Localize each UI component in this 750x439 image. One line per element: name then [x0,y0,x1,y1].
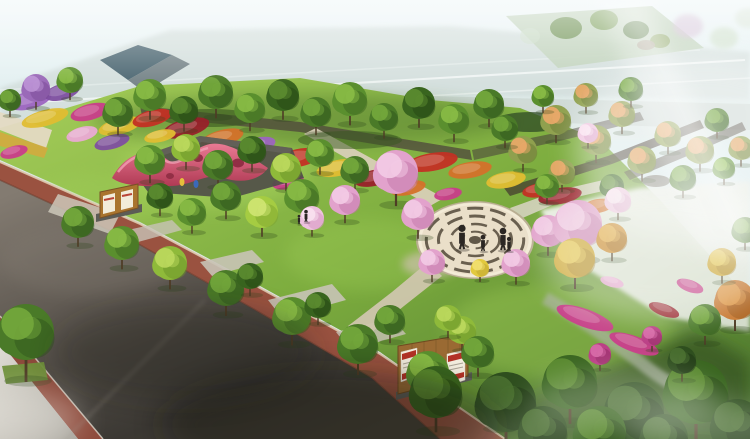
person-head [458,225,465,232]
tree-canopy-highlight [212,83,226,97]
tree-shadow [204,114,233,121]
tree-shadow [158,285,187,292]
tree-shadow [407,124,434,130]
tree-canopy-highlight [450,111,462,123]
tree-canopy-highlight [513,255,524,266]
tree-shadow [545,139,571,145]
child-figure [180,178,185,186]
tree-shadow [539,201,559,206]
tree-canopy-highlight [353,333,369,349]
tree-canopy-highlight [317,145,328,156]
tree-shadow [182,230,206,236]
tree-shadow [406,235,433,241]
tree-canopy-highlight [166,254,180,268]
tree-canopy-highlight [520,142,531,153]
tree-canopy-highlight [544,179,554,189]
sculpture-hole [166,173,174,179]
tree-canopy-highlight [415,94,428,107]
tree-shadow [338,121,367,128]
tree-canopy-highlight [118,234,132,248]
top-fade [0,0,750,84]
tree-canopy-highlight [597,348,606,357]
tree-shadow [3,114,22,118]
tree-canopy-highlight [309,211,319,221]
tree-shadow [26,106,50,112]
tree-canopy-highlight [222,188,234,200]
tree-shadow [305,131,331,137]
tree-canopy-highlight [414,205,427,218]
tree-canopy-highlight [485,96,497,108]
tree-shadow [242,168,266,174]
sign-panel [103,193,115,214]
tree-canopy-highlight [540,90,549,99]
tree-shadow [250,233,277,239]
tree-shadow [176,166,200,172]
tree-shadow [309,322,331,327]
tree-shadow [439,335,461,340]
tree-canopy-highlight [214,157,226,169]
tree-canopy-highlight [341,192,353,204]
tree-canopy-highlight [502,121,512,131]
tree-shadow [334,219,360,225]
tree-shadow [215,215,241,221]
tree-shadow [496,145,518,150]
park-rendering-stage [0,0,750,439]
plaza-center [469,236,481,244]
tree-shadow [4,375,52,386]
tree-shadow [107,131,133,137]
tree-canopy-highlight [183,140,194,151]
tree-canopy-highlight [552,112,564,124]
tree-canopy-highlight [246,100,258,112]
tree-canopy-highlight [312,104,324,116]
tree-canopy-highlight [679,352,690,363]
tree-canopy-highlight [650,331,658,339]
tree-shadow [374,135,398,141]
tree-canopy-highlight [352,162,363,173]
child-figure [194,180,199,188]
tree-canopy-highlight [298,187,312,201]
tree-shadow [646,349,663,353]
tree-shadow [443,138,469,144]
tree-canopy-highlight [429,255,439,265]
person-shadow [506,251,514,253]
tree-canopy-highlight [583,88,593,98]
tree-canopy-highlight [7,94,16,103]
person-head [500,228,507,235]
tree-canopy-highlight [478,263,485,270]
tree-canopy-highlight [74,213,87,226]
tree-shadow [693,341,720,347]
person-head [507,237,511,241]
tree-shadow [466,373,493,379]
tree-canopy-highlight [146,86,159,99]
tree-canopy-highlight [222,278,236,292]
tree-canopy-highlight [499,386,523,410]
tree-canopy-highlight [559,165,569,175]
person-head [304,210,308,214]
park-aerial-rendering [0,0,750,439]
tree-canopy-highlight [181,102,192,113]
tree-canopy-highlight [249,142,260,153]
tree-canopy-highlight [346,90,360,104]
tree-shadow [174,128,198,134]
tree-canopy-highlight [146,152,158,164]
tree-canopy-highlight [247,269,257,279]
road-shadow [55,304,315,400]
tree-canopy-highlight [391,160,409,178]
tree-shadow [513,168,537,174]
tree-canopy-highlight [114,104,126,116]
tree-shadow [138,116,165,122]
tree-shadow [310,171,334,177]
tree-shadow [593,368,612,372]
tree-canopy-highlight [445,311,455,321]
tree-shadow [239,127,265,133]
person-shadow [304,222,311,224]
tree-canopy-highlight [279,86,292,99]
tree-canopy-highlight [381,109,392,120]
tree-shadow [271,116,298,122]
tree-canopy-highlight [287,306,302,321]
tree-shadow [536,110,555,114]
tree-shadow [151,213,173,218]
tree-shadow [241,293,263,298]
tree-shadow [379,339,405,345]
tree-canopy-highlight [157,189,167,199]
tree-canopy-highlight [386,312,398,324]
person-shadow [480,251,489,253]
tree-canopy-highlight [282,160,294,172]
tree-canopy-highlight [258,203,271,216]
tree-canopy-highlight [474,343,487,356]
sign-panel [121,189,133,210]
tree-shadow [423,279,445,284]
person-head [298,215,301,218]
tree-shadow [110,265,139,272]
tree-shadow [61,97,83,102]
tree-shadow [474,279,489,283]
person-head [481,235,486,240]
tree-canopy-highlight [19,317,41,339]
tree-shadow [304,233,324,238]
tree-canopy-highlight [315,298,325,308]
tree-canopy-highlight [189,204,200,215]
tree-shadow [66,243,93,249]
tree-shadow [506,281,530,287]
person-shadow [297,224,302,225]
